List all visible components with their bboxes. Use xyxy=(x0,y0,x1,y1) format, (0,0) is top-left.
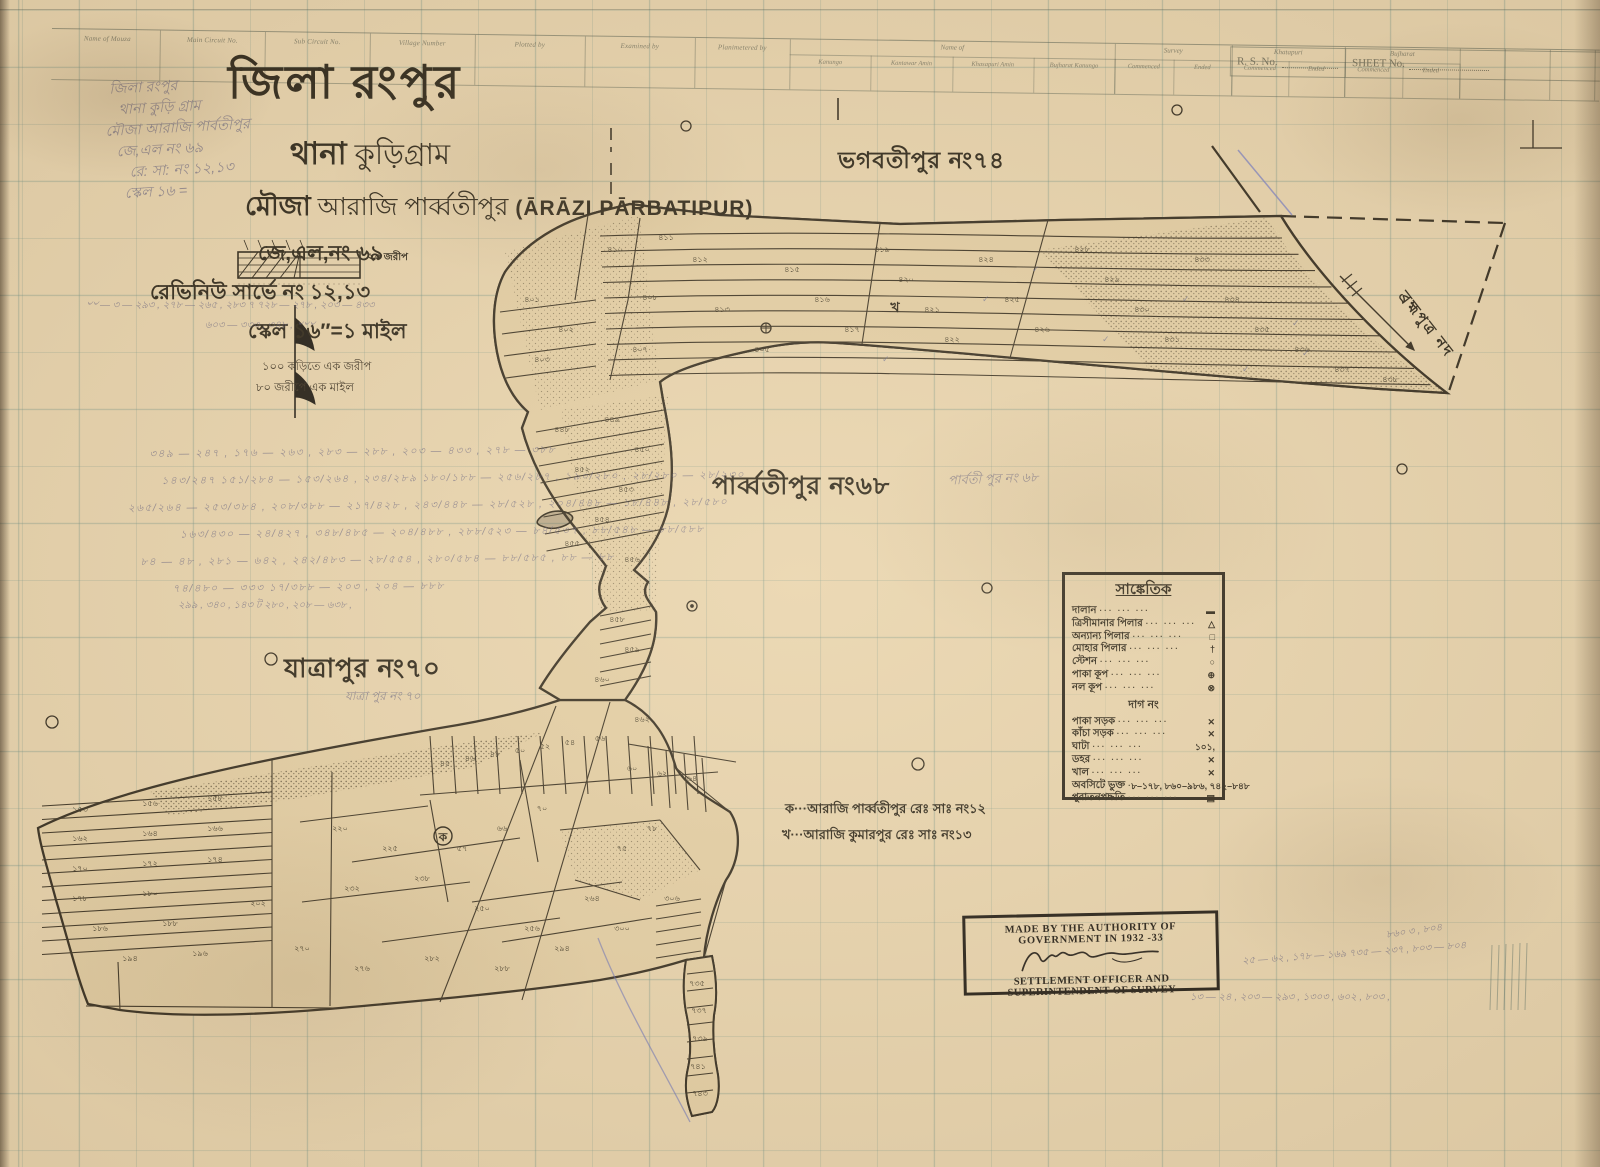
plot-number: ৪১১ xyxy=(658,233,674,242)
plot-number: ৪১৫ xyxy=(784,265,800,274)
legend-symbol: ✕ xyxy=(1201,767,1215,780)
plot-number: ১৭৮ xyxy=(72,894,88,903)
scale-note-1: ১০০ কড়িতে এক জরীপ xyxy=(262,358,630,377)
plot-number: ৪৬০ xyxy=(594,675,610,684)
plot-number: ৫৬ xyxy=(595,734,605,743)
legend-row: ঘাটা··· ··· ···১০১, xyxy=(1072,741,1215,754)
plot-number: ৫৪ xyxy=(565,738,575,747)
neighbor-label-bhagabatipur: ভগবতীপুর নং৭৪ xyxy=(838,142,1005,181)
pencil-echo-jatrapur: যাত্রা পুর নং ৭০ xyxy=(345,688,420,708)
plot-number: ২৭০ xyxy=(294,944,310,953)
legend-row: অবসিটে ভুক্ত··· ··· ···৮–১৭৮, ৮৬০–৯৮৬, ৭… xyxy=(1072,780,1215,793)
pencil-title-notes: জিলা রংপুরথানা কুড়ি গ্রামমৌজা আরাজি পার… xyxy=(109,72,254,205)
scanned-cadastral-map-sheet: Name of MouzaMain Circuit No.Sub Circuit… xyxy=(0,0,1600,1167)
plot-number: ৪২৫ xyxy=(1004,295,1020,304)
plot-number: ৪০৮ xyxy=(642,293,658,302)
plot-number: ২৬৪ xyxy=(584,894,600,903)
pencil-diagonal-line xyxy=(1238,150,1292,215)
legend-symbol: ✕ xyxy=(1201,716,1215,729)
pencil-stamp-note-2: ১৩ — ২৪ , ২০৩ — ২৯৩ , ১৩০৩ , ৬০২ , ৮০৩ , xyxy=(1190,990,1390,1007)
scale-note-2: ৮০ জরীপে এক মাইল xyxy=(256,379,630,398)
plot-number: ৭৩৯ xyxy=(692,1034,708,1043)
plot-number: ২৩২ xyxy=(344,884,360,893)
pencil-check: ✓ xyxy=(1302,348,1310,358)
legend-row: ত্রিসীমানার পিলার··· ··· ···△ xyxy=(1072,618,1215,631)
plot-number: ৪২৪ xyxy=(978,255,994,264)
plot-number: ৪১৭ xyxy=(844,325,860,334)
legend-symbol: ✕ xyxy=(1201,728,1215,741)
plot-number: ১৭২ xyxy=(142,859,158,868)
legend-row: পাকা সড়ক··· ··· ···✕ xyxy=(1072,716,1215,729)
legend-row: স্টেশন··· ··· ···○ xyxy=(1072,656,1215,669)
legend-symbol: ⊗ xyxy=(1201,682,1215,695)
plot-number: ৫২ xyxy=(540,742,550,751)
plot-number: ২২০ xyxy=(332,824,348,833)
plot-number: ৭৪৩ xyxy=(692,1089,708,1098)
svg-text:ক: ক xyxy=(438,830,448,844)
government-stamp: MADE BY THE AUTHORITY OF GOVERNMENT IN 1… xyxy=(962,910,1220,995)
legend-box: সাঙ্কেতিক দালান··· ··· ···▬ত্রিসীমানার প… xyxy=(1062,572,1225,800)
plot-number: ৭৫ xyxy=(617,844,627,853)
plot-number: ৪৩৫ xyxy=(1254,325,1270,334)
plot-number: ২৩৮ xyxy=(414,874,430,883)
plot-number: ৪০৭ xyxy=(632,345,648,354)
note-kha: খ···আরাজি কুমারপুর রেঃ সাঃ নং১৩ xyxy=(782,826,972,847)
plot-number: ৪১৯ xyxy=(874,245,890,254)
plot-number: ৫০ xyxy=(515,746,525,755)
pencil-echo-parbatipur: পার্বতী পুর নং ৬৮ xyxy=(948,468,1039,492)
plot-number: ২৮৮ xyxy=(494,964,510,973)
plot-number: ২৭৬ xyxy=(354,964,370,973)
thana-line: থানা কুড়িগ্রাম xyxy=(290,130,630,182)
legend-row: কাঁচা সড়ক··· ··· ···✕ xyxy=(1072,728,1215,741)
jl-number-line: জে,এল,নং ৬৯ xyxy=(258,237,630,272)
plot-number: ১৯৪ xyxy=(122,954,138,963)
plot-number: ৬০ xyxy=(627,764,637,773)
legend-row: খাল··· ··· ···✕ xyxy=(1072,767,1215,780)
plot-number: ৫৭ xyxy=(457,844,467,853)
plot-number: ৭৩৫ xyxy=(689,979,705,988)
stamp-line-1: MADE BY THE AUTHORITY OF GOVERNMENT IN 1… xyxy=(965,920,1215,947)
plot-number: ১৭০ xyxy=(72,864,88,873)
margin-ruling-lines xyxy=(1490,943,1527,1010)
plot-number: ৪৩৭ xyxy=(1334,365,1350,374)
plot-number: ৩০০ xyxy=(614,924,630,933)
pencil-check: ✓ xyxy=(1242,364,1250,374)
legend-symbol: □ xyxy=(1201,631,1215,644)
legend-row: দালান··· ··· ···▬ xyxy=(1072,605,1215,618)
pencil-note-row-a: ৺৺ — ৩ — ২৯৩ , ২৭৮ — ২৬৫ , ২৮৩ ৭ ৭২৮ — ২… xyxy=(85,298,375,315)
plot-number: ১৮০ xyxy=(142,889,158,898)
pencil-check: ✓ xyxy=(1032,264,1040,274)
plot-number: ৬৪ xyxy=(687,774,697,783)
river-label: ব্রহ্মপুত্র নদ xyxy=(1394,287,1457,361)
pencil-khatiyan-fractions: ৩৪৯ — ২৪৭ , ১৭৬ — ২৬৩ , ২৮৩ — ২৮৮ , ২০৩ … xyxy=(149,435,746,603)
plot-number: ৪০৫ xyxy=(754,345,770,354)
plot-number: ২৫০ xyxy=(474,904,490,913)
plot-number: ৪২৬ xyxy=(1034,325,1050,334)
plot-number: ৬২ xyxy=(657,769,667,778)
plot-number: ৭৩৭ xyxy=(691,1006,707,1015)
pencil-check: ✓ xyxy=(1292,318,1300,328)
plot-number: ৬৬ xyxy=(497,824,507,833)
plot-number: ২৮২ xyxy=(424,954,440,963)
pencil-check: ✓ xyxy=(1102,334,1110,344)
plot-number: ৪৩৪ xyxy=(1224,295,1240,304)
plot-number: ৪২০ xyxy=(898,275,914,284)
legend-dag-header: দাগ নং xyxy=(1072,696,1215,715)
legend-row: নল কূপ··· ··· ···⊗ xyxy=(1072,682,1215,695)
plot-number: ২৯৪ xyxy=(554,944,570,953)
plot-number: ১৬৪ xyxy=(142,829,158,838)
plot-number: ৭৮ xyxy=(647,824,658,833)
legend-row: মোহার পিলার··· ··· ···† xyxy=(1072,643,1215,656)
legend-symbol: ✕ xyxy=(1201,754,1215,767)
plot-number: ২০২ xyxy=(250,899,266,908)
plot-number: ১৫৮ xyxy=(207,794,223,803)
plot-number: ৪২১ xyxy=(924,305,940,314)
legend-symbol: ১০১, xyxy=(1195,741,1215,754)
legend-title: সাঙ্কেতিক xyxy=(1072,578,1215,603)
plot-number: ৪৩০ xyxy=(1134,305,1150,314)
plot-number: ৪৬২ xyxy=(634,715,650,724)
plot-number: ১৯৬ xyxy=(192,949,208,958)
plot-number: ১৮৬ xyxy=(92,924,108,933)
pencil-check: ✓ xyxy=(882,354,890,364)
plot-number: ৪৩৩ xyxy=(1194,255,1210,264)
plot-number: ১৫৩ xyxy=(72,805,88,814)
plot-number: ৪১২ xyxy=(692,255,708,264)
plot-number: ৪৬ xyxy=(465,754,475,763)
plot-number: ২২৫ xyxy=(382,844,398,853)
plot-number: ৭৪১ xyxy=(690,1062,706,1071)
pencil-check: ✓ xyxy=(1182,294,1190,304)
district-title: জিলা রংপুর xyxy=(228,48,630,124)
svg-text:খ: খ xyxy=(889,299,900,315)
mouza-line: মৌজা আরাজি পার্ব্বতীপুর (ĀRĀZI PĀRBATIPU… xyxy=(245,186,630,231)
plot-number: ১৬২ xyxy=(72,834,88,843)
pencil-note-row-b: ৬০৩ — ৩৩৩ , ৩৪৮ , ৺৺৺ xyxy=(205,318,314,335)
legend-symbol: † xyxy=(1201,643,1215,656)
plot-number: ৪৫ xyxy=(440,759,450,768)
pencil-check: ✓ xyxy=(982,294,990,304)
plot-number: ৪৮ xyxy=(490,750,501,759)
plot-number: ৪২৮ xyxy=(1074,245,1090,254)
legend-row: পাকা কূপ··· ··· ···⊕ xyxy=(1072,669,1215,682)
plot-number: ৪২২ xyxy=(944,335,960,344)
plot-number: ৪১৩ xyxy=(714,305,730,314)
plot-number: ৪৩১ xyxy=(1164,335,1180,344)
note-ka: ক···আরাজি পার্ব্বতীপুর রেঃ সাঃ নং১২ xyxy=(785,800,986,821)
plot-number: ৪১৬ xyxy=(814,295,830,304)
legend-symbol: ○ xyxy=(1201,656,1215,669)
legend-symbol: ▬ xyxy=(1201,605,1215,618)
legend-symbol: ▤ xyxy=(1201,792,1215,805)
plot-number: ৭০ xyxy=(537,804,547,813)
legend-row: অন্যান্য পিলার··· ··· ···□ xyxy=(1072,631,1215,644)
plot-number: ৪৩৮ xyxy=(1382,375,1398,384)
legend-row: পুরাতনপদ্ধতি··· ··· ···▤ xyxy=(1072,792,1215,805)
legend-rows-top: দালান··· ··· ···▬ত্রিসীমানার পিলার··· ··… xyxy=(1072,605,1215,695)
pencil-fraction-tail: ২৯৯ , ৩৪০ , ১৪৩ ট ২৮০ , ২০৮ — ৬৩৮ , xyxy=(178,598,352,615)
plot-number: ১৮৮ xyxy=(162,919,178,928)
legend-symbol: ৮–১৭৮, ৮৬০–৯৮৬, ৭৪২–৮৪৮ xyxy=(1131,780,1215,793)
plot-number: ৪৪৮ xyxy=(554,425,570,434)
legend-symbol: △ xyxy=(1201,618,1215,631)
legend-row: ডহর··· ··· ···✕ xyxy=(1072,754,1215,767)
plot-number: ২৫৬ xyxy=(524,924,540,933)
plot-number: ৪৫৮ xyxy=(609,615,625,624)
plot-number: ৪৪৯ xyxy=(604,415,620,424)
corner-mark-top-right xyxy=(1520,120,1562,148)
plot-number: ৩০৬ xyxy=(664,894,680,903)
legend-rows-bottom: পাকা সড়ক··· ··· ···✕কাঁচা সড়ক··· ··· ·… xyxy=(1072,716,1215,806)
legend-symbol: ⊕ xyxy=(1201,669,1215,682)
plot-number: ৪৫৯ xyxy=(624,645,640,654)
plot-number: ১৫৬ xyxy=(142,799,158,808)
plot-number: ১৭৪ xyxy=(207,855,223,864)
neighbor-label-jatrapur: যাত্রাপুর নং৭০ xyxy=(284,648,441,692)
plot-number: ১৬৬ xyxy=(207,824,223,833)
plot-number: ৪২৯ xyxy=(1104,275,1120,284)
